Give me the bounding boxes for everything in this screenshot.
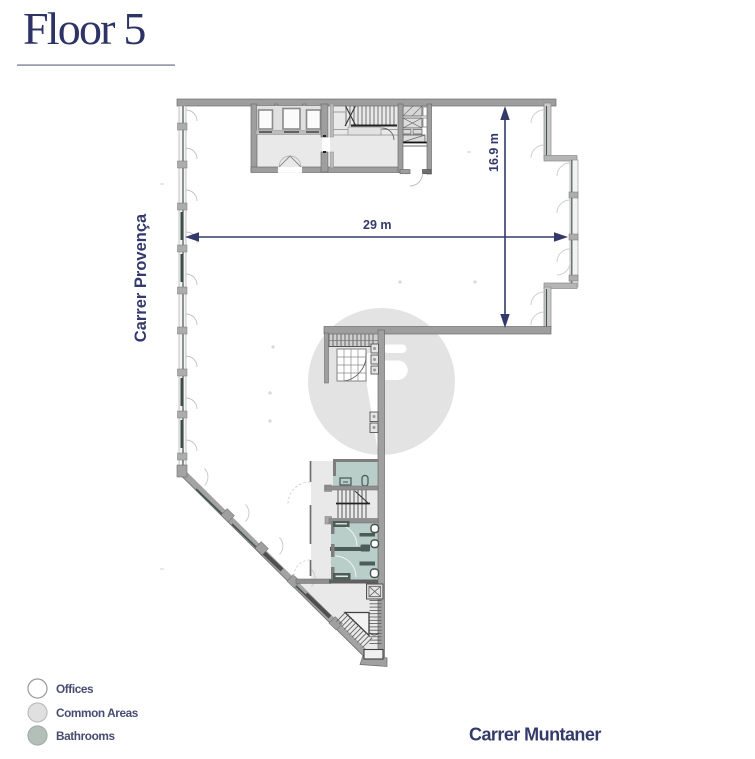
svg-text:16.9 m: 16.9 m <box>487 133 501 172</box>
svg-text:Common Areas: Common Areas <box>56 706 139 720</box>
svg-text:29 m: 29 m <box>363 218 392 232</box>
svg-text:Carrer Muntaner: Carrer Muntaner <box>469 725 601 745</box>
svg-text:Floor 5: Floor 5 <box>23 3 145 54</box>
svg-text:Carrer Provença: Carrer Provença <box>132 213 150 342</box>
svg-text:Offices: Offices <box>56 682 94 696</box>
svg-text:Bathrooms: Bathrooms <box>56 729 116 743</box>
